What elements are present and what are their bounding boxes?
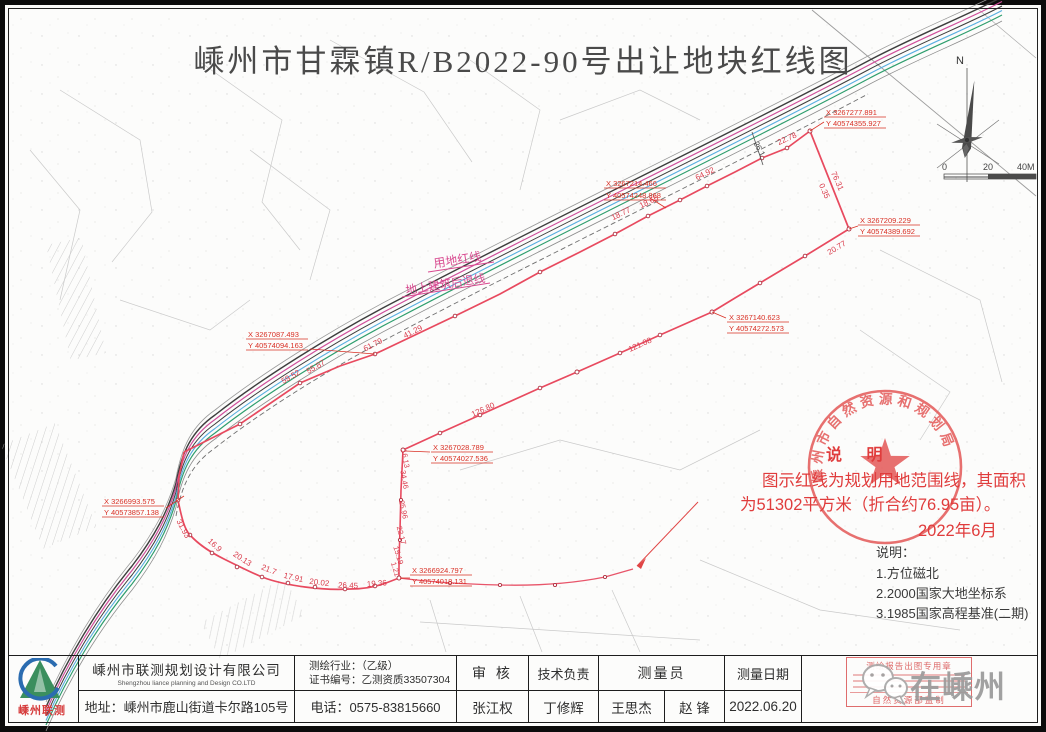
phone-cell: 电话：0575-83815660 [294, 690, 456, 723]
wechat-icon [858, 661, 910, 707]
cert-cell: 测绘行业：（乙级） 证书编号：乙测资质33507304 [294, 656, 456, 690]
watermark-text: 在嵊州 [910, 662, 1006, 707]
notes-block: 说明： 1.方位磁北 2.2000国家大地坐标系 3.1985国家高程基准(二期… [876, 543, 1028, 624]
company-logo: 嵊州联测 [12, 658, 68, 718]
stamp-cell-divider [801, 656, 802, 723]
survey-date-value: 2022.06.20 [724, 690, 801, 723]
reviewer-label: 审 核 [456, 656, 528, 690]
tech-lead-label: 技术负责 [528, 656, 598, 690]
surveyor-name-2: 赵 锋 [664, 690, 724, 723]
industry-grade: 测绘行业：（乙级） [309, 659, 398, 673]
watermark: 在嵊州 [858, 658, 1046, 710]
survey-date-label: 测量日期 [724, 656, 801, 690]
company-logo-text: 嵊州联测 [10, 702, 74, 718]
red-note-line2: 为51302平方米（折合约76.95亩）。 [740, 491, 1000, 515]
red-note-line1: 图示红线为规划用地范围线，其面积 [762, 467, 1026, 491]
note-item: 3.1985国家高程基准(二期) [876, 604, 1028, 624]
surveyor-label: 测量员 [598, 656, 724, 690]
notes-heading: 说明： [876, 543, 1028, 563]
reviewer-name: 张江权 [456, 690, 528, 723]
red-note-date: 2022年6月 [918, 517, 997, 541]
company-cell: 嵊州市联测规划设计有限公司 Shengzhou liance planning … [78, 656, 294, 690]
note-item: 1.方位磁北 [876, 564, 1028, 584]
company-name-en: Shengzhou liance planning and Design CO.… [118, 680, 256, 687]
page-title: 嵊州市甘霖镇R/B2022-90号出让地块红线图 [0, 36, 1046, 81]
cert-number: 证书编号：乙测资质33507304 [309, 673, 450, 687]
note-item: 2.2000国家大地坐标系 [876, 584, 1028, 604]
company-logo-mark [12, 658, 68, 702]
company-name-cn: 嵊州市联测规划设计有限公司 [92, 659, 281, 679]
company-address: 地址：嵊州市鹿山街道卡尔路105号 [78, 690, 294, 723]
red-note-heading: 说 明 [826, 441, 892, 465]
surveyor-name-1: 王思杰 [598, 690, 664, 723]
tech-lead-name: 丁修辉 [528, 690, 598, 723]
